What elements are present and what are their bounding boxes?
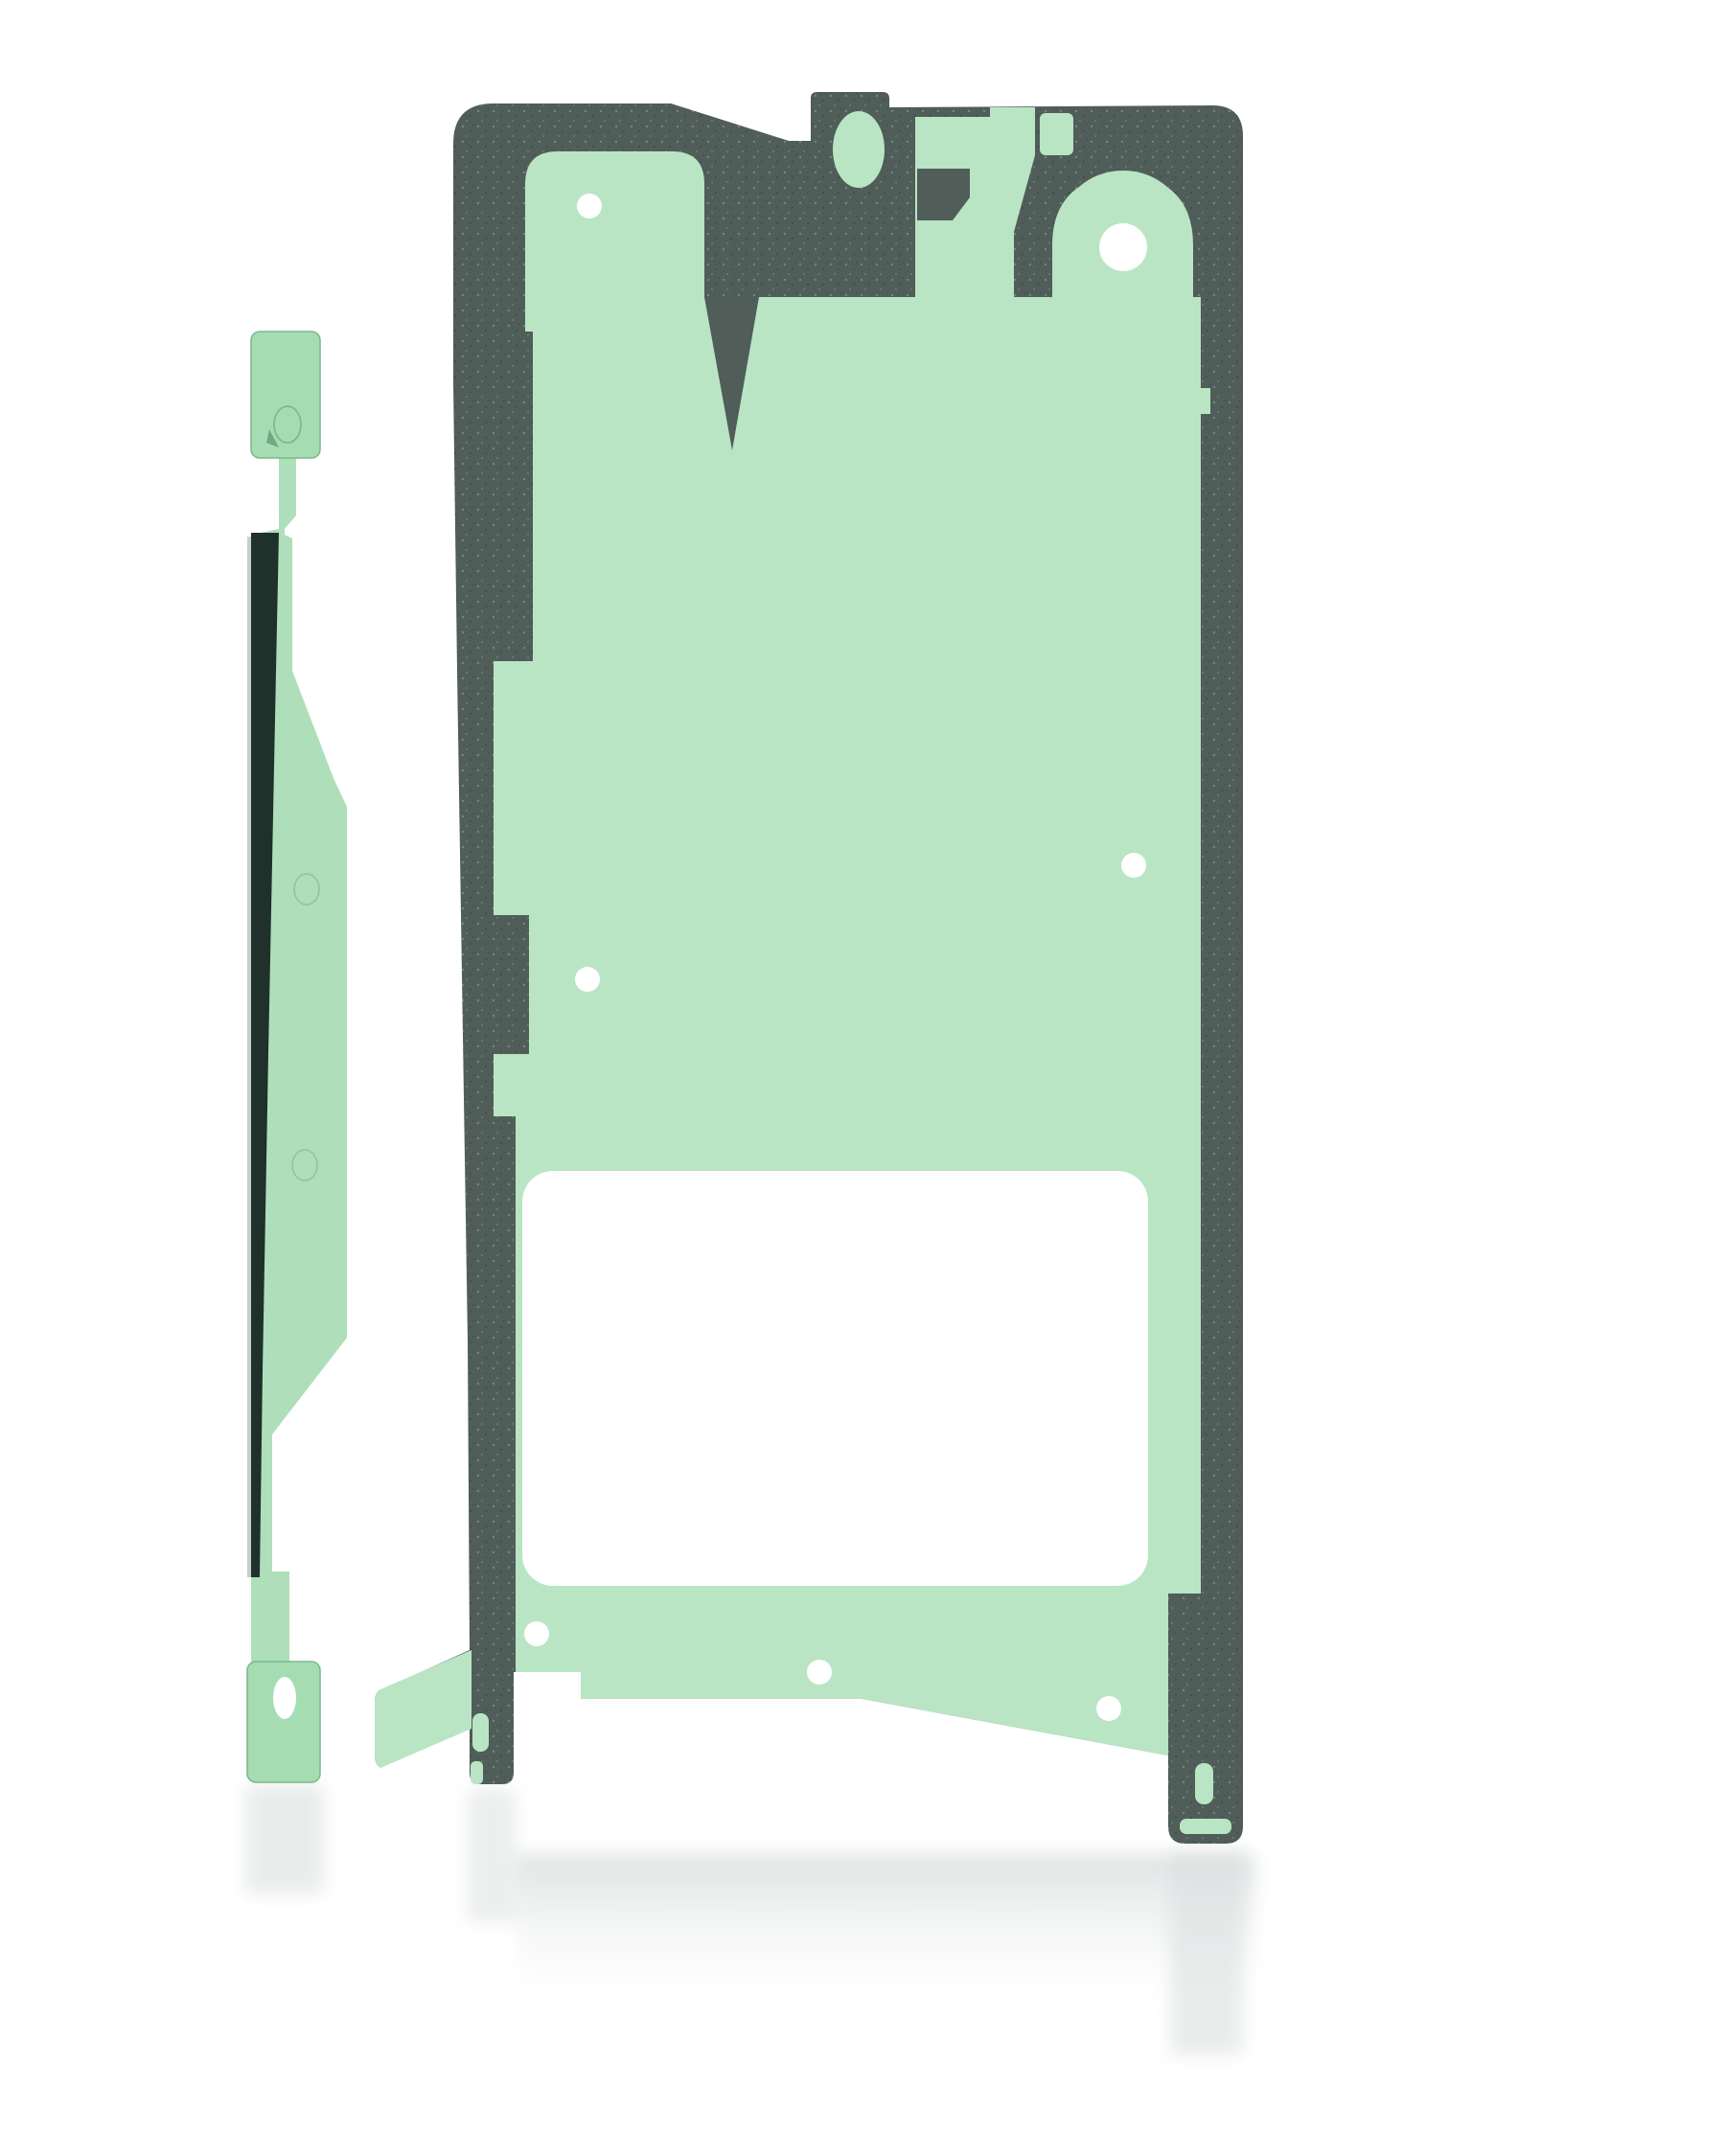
adhesive-kit-photo [0,0,1725,2156]
front-camera-cutout [833,111,885,188]
left-foot-slot [472,1713,489,1752]
strip-bottom-tab-hole [273,1677,296,1719]
left-foot-sliver [471,1761,483,1784]
strip-reflection [245,1784,324,1894]
main-adhesive-piece [375,92,1243,1844]
strip-top-tab [251,332,320,458]
right-foot-slot [1195,1763,1213,1804]
registration-hole-mid-left [575,967,600,992]
sensor-liner-region [525,151,704,332]
right-foot-sliver [1180,1819,1231,1834]
sensor-square-cutout [1040,113,1073,155]
main-piece-reflection [517,1854,1255,2007]
registration-hole-bottom-left [524,1621,549,1646]
registration-hole-top-left [577,194,602,218]
left-foot-reflection [468,1788,516,1922]
right-foot-reflection [1170,1849,1243,2055]
earpiece-hole [1099,223,1147,271]
registration-hole-bottom-center [807,1660,832,1685]
registration-hole-mid-right [1121,853,1146,878]
registration-hole-bottom-right [1096,1696,1121,1721]
product-photo-canvas [0,0,1725,2156]
display-cutout [522,1171,1148,1586]
